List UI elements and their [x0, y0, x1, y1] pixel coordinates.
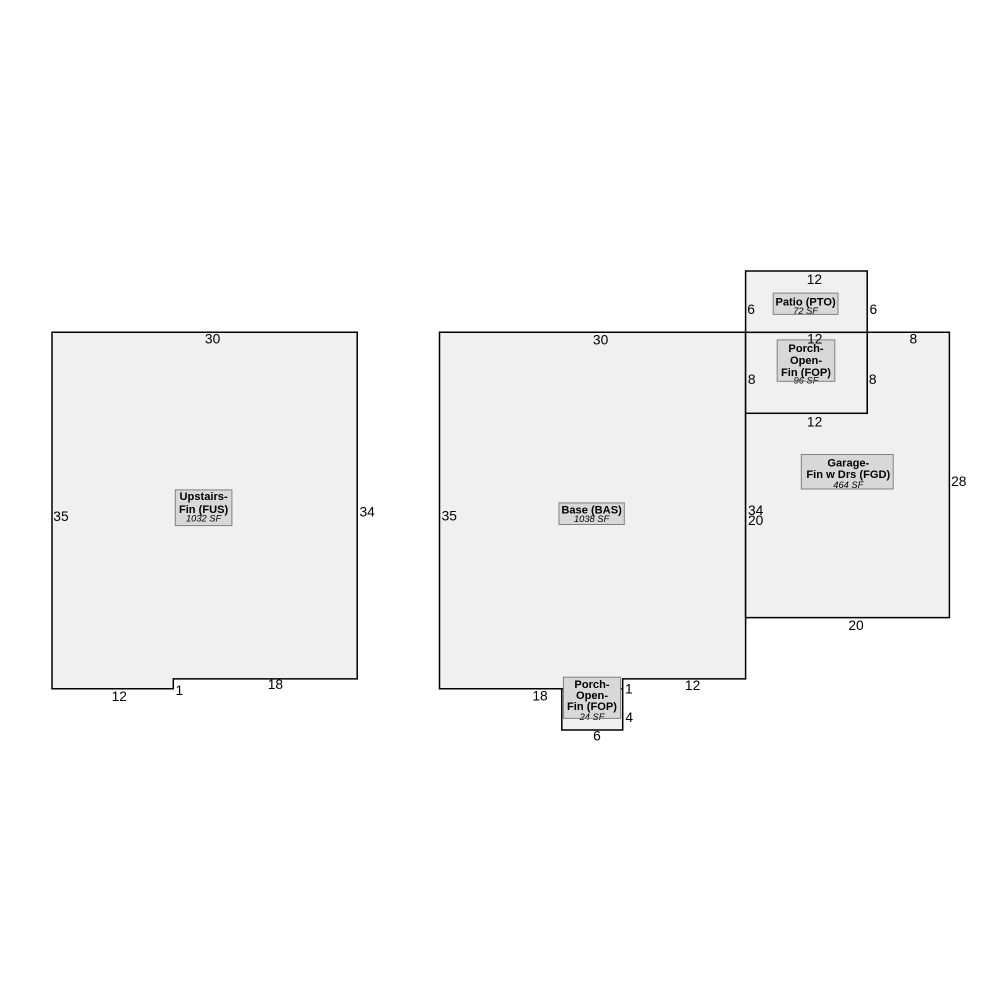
svg-text:24 SF: 24 SF — [579, 712, 606, 722]
svg-text:Open-: Open- — [576, 690, 608, 702]
svg-text:464 SF: 464 SF — [833, 480, 864, 490]
svg-text:30: 30 — [593, 332, 609, 347]
svg-text:8: 8 — [869, 372, 877, 387]
svg-text:12: 12 — [685, 678, 700, 693]
svg-text:8: 8 — [910, 331, 918, 346]
svg-text:12: 12 — [807, 272, 822, 287]
svg-text:Garage-: Garage- — [827, 458, 869, 470]
svg-text:6: 6 — [593, 729, 601, 744]
svg-text:18: 18 — [532, 688, 548, 703]
svg-text:34: 34 — [360, 504, 376, 519]
svg-text:6: 6 — [747, 302, 755, 317]
svg-text:12: 12 — [807, 414, 822, 429]
svg-text:12: 12 — [112, 689, 127, 704]
svg-text:35: 35 — [442, 509, 458, 524]
svg-text:20: 20 — [848, 618, 864, 633]
svg-text:28: 28 — [951, 474, 967, 489]
svg-text:18: 18 — [268, 677, 284, 692]
svg-text:Open-: Open- — [790, 355, 822, 367]
svg-text:1038 SF: 1038 SF — [574, 514, 610, 524]
svg-text:1: 1 — [176, 683, 184, 698]
svg-text:6: 6 — [870, 302, 878, 317]
svg-text:8: 8 — [748, 372, 756, 387]
svg-text:1: 1 — [625, 682, 633, 697]
svg-text:20: 20 — [748, 513, 764, 528]
svg-text:30: 30 — [205, 332, 221, 347]
svg-text:96 SF: 96 SF — [794, 376, 820, 386]
svg-text:Upstairs-: Upstairs- — [180, 491, 228, 503]
svg-text:4: 4 — [625, 710, 633, 725]
svg-text:35: 35 — [53, 509, 69, 524]
svg-text:1032 SF: 1032 SF — [186, 513, 222, 523]
svg-text:12: 12 — [807, 332, 822, 347]
